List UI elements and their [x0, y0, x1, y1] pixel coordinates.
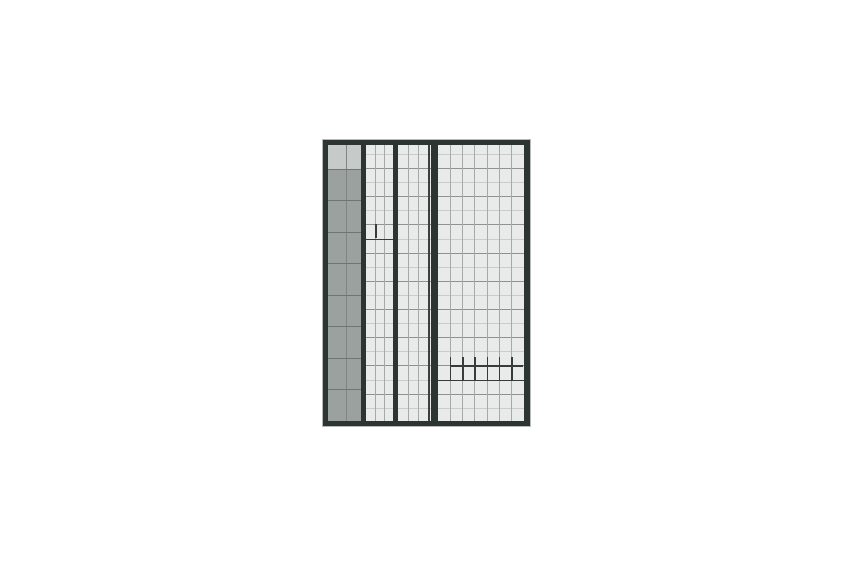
gray-row-line — [328, 295, 361, 296]
step-line-upper — [450, 365, 524, 367]
gray-row-line — [328, 169, 361, 170]
row-line-dark — [361, 309, 524, 310]
row-line-light — [361, 408, 524, 409]
sheet-interior — [328, 145, 524, 421]
row-line-light — [361, 267, 524, 268]
separator-bar — [393, 145, 399, 421]
column-line-section-a — [375, 145, 376, 421]
row-line-dark — [361, 168, 524, 169]
gray-row-line — [328, 232, 361, 233]
grid-sheet — [322, 139, 531, 427]
tick-mark — [462, 357, 464, 380]
column-line-section-b — [418, 145, 419, 421]
gray-row-line — [328, 263, 361, 264]
column-line-section-c — [487, 145, 488, 421]
extra-dark-rule-section-b — [428, 145, 430, 421]
row-line-dark — [361, 281, 524, 282]
row-line-dark — [361, 337, 524, 338]
tick-mark — [487, 357, 489, 380]
separator-bar — [361, 145, 367, 421]
separator-bar — [431, 145, 438, 421]
row-line-dark — [361, 196, 524, 197]
gray-row-line — [328, 358, 361, 359]
gray-column-divider — [346, 145, 347, 421]
tick-mark — [511, 357, 513, 380]
column-line-section-c — [450, 145, 451, 421]
gray-row-line — [328, 389, 361, 390]
row-line-light — [361, 154, 524, 155]
row-line-light — [361, 380, 524, 381]
gray-column-fill — [328, 145, 361, 421]
cell-mark-left-line — [375, 224, 377, 238]
row-line-light — [361, 351, 524, 352]
row-line-dark — [361, 253, 524, 254]
row-line-light — [361, 239, 524, 240]
row-line-dark — [361, 224, 524, 225]
row-line-dark — [361, 365, 524, 366]
cell-mark-bottom-line — [366, 239, 393, 241]
page-background — [0, 0, 850, 567]
column-line-section-c — [462, 145, 463, 421]
tick-mark — [450, 357, 452, 380]
column-line-section-c — [474, 145, 475, 421]
row-line-dark — [361, 394, 524, 395]
gray-row-line — [328, 326, 361, 327]
row-line-light — [361, 323, 524, 324]
gray-column-header-cell — [328, 145, 361, 169]
row-line-light — [361, 182, 524, 183]
row-line-light — [361, 295, 524, 296]
gray-row-line — [328, 200, 361, 201]
tick-mark — [474, 357, 476, 380]
tick-mark — [499, 357, 501, 380]
column-line-section-c — [511, 145, 512, 421]
column-line-section-b — [408, 145, 409, 421]
row-line-light — [361, 210, 524, 211]
column-line-section-c — [499, 145, 500, 421]
step-line-lower — [438, 380, 524, 382]
column-line-section-a — [384, 145, 385, 421]
